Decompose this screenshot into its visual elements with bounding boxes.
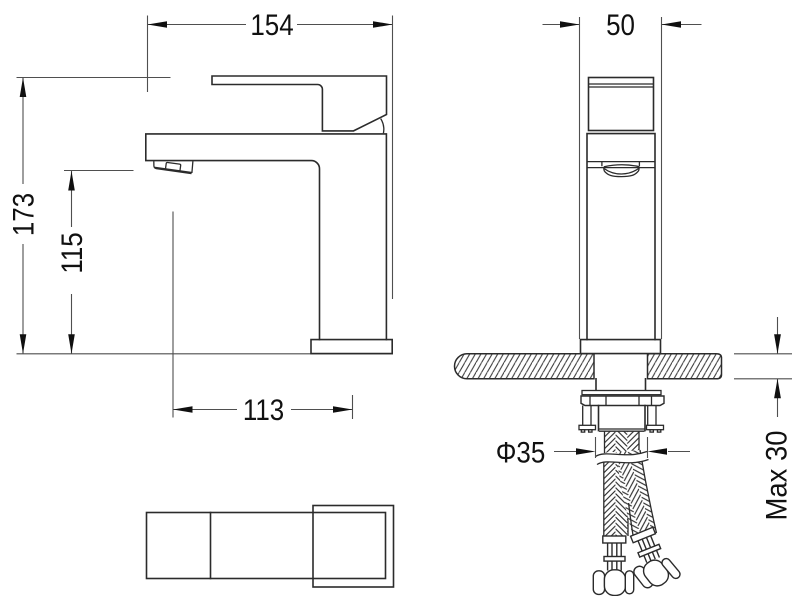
- svg-text:115: 115: [55, 232, 88, 273]
- svg-text:Φ35: Φ35: [496, 436, 546, 469]
- svg-text:113: 113: [243, 393, 284, 426]
- svg-text:Max 30: Max 30: [761, 431, 794, 521]
- svg-text:154: 154: [250, 8, 293, 41]
- svg-text:50: 50: [606, 8, 635, 41]
- svg-text:173: 173: [7, 193, 40, 236]
